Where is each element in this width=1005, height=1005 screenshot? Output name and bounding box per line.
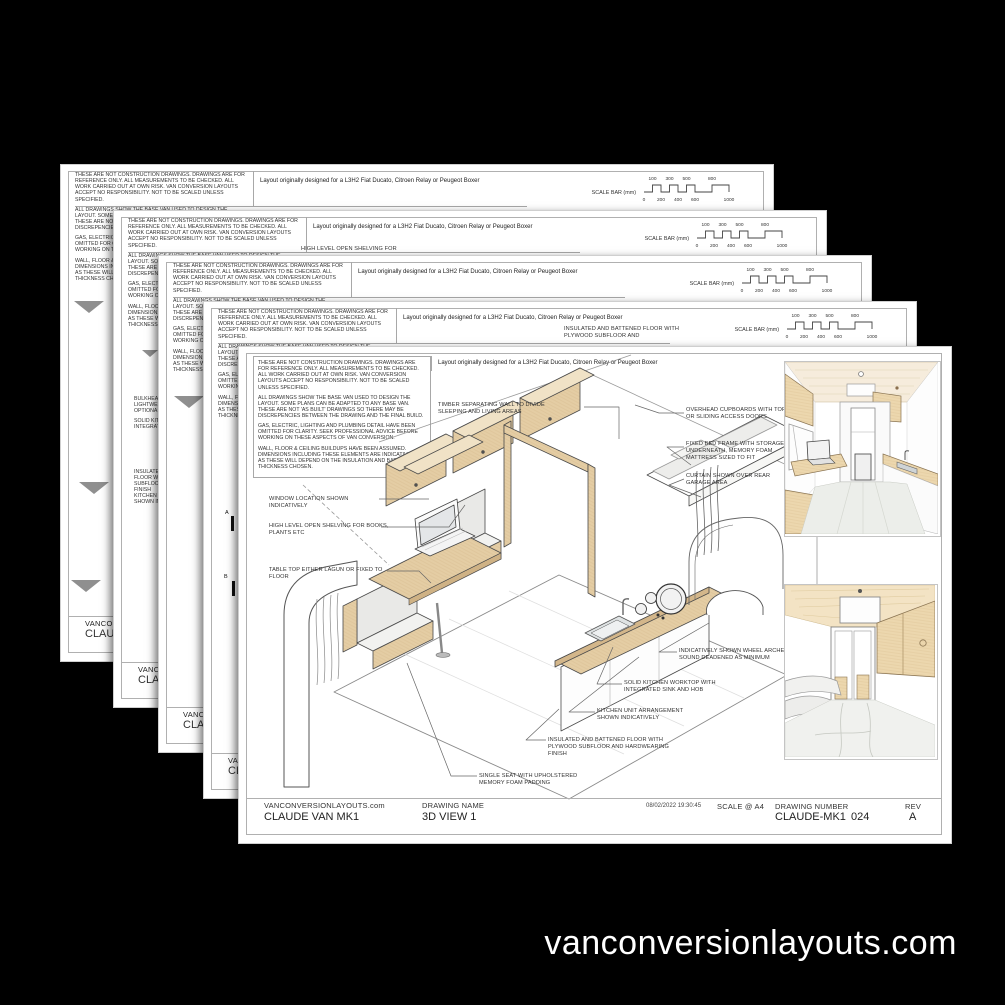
- scale-bar: SCALE BAR (mm) 100 300 500 800 0 200 400…: [654, 261, 839, 295]
- level-marker-icon: [174, 396, 204, 408]
- svg-text:800: 800: [708, 176, 716, 182]
- svg-text:300: 300: [665, 176, 673, 182]
- canvas: THESE ARE NOT CONSTRUCTION DRAWINGS. DRA…: [0, 0, 1005, 1005]
- drawing-number-label: DRAWING NUMBER: [775, 802, 848, 811]
- scale-bar: SCALE BAR (mm) 100 300 500 800 0 200 400…: [609, 216, 794, 250]
- disclaimer-paragraph: THESE ARE NOT CONSTRUCTION DRAWINGS. DRA…: [218, 309, 388, 340]
- annotation-insulated-floor: INSULATED AND BATTENED FLOOR WITH PLYWOO…: [548, 737, 670, 758]
- layout-note: Layout originally designed for a L3H2 Fi…: [260, 178, 479, 184]
- svg-text:SCALE BAR (mm): SCALE BAR (mm): [690, 281, 735, 287]
- scale-label: SCALE @ A4: [717, 802, 764, 811]
- svg-text:400: 400: [674, 197, 682, 203]
- render-view-1: [784, 361, 941, 537]
- ceiling-light: [859, 372, 864, 377]
- svg-text:300: 300: [718, 222, 726, 228]
- svg-text:300: 300: [763, 267, 771, 273]
- annotation-curtain: CURTAIN SHOWN OVER REAR GARAGE AREA: [686, 473, 782, 487]
- level-marker-icon: [79, 482, 109, 494]
- timestamp: 08/02/2022 19:30:45: [646, 803, 701, 809]
- svg-text:200: 200: [800, 334, 808, 340]
- svg-text:1000: 1000: [724, 197, 735, 203]
- svg-text:600: 600: [834, 334, 842, 340]
- svg-text:500: 500: [825, 313, 833, 319]
- svg-text:100: 100: [701, 222, 709, 228]
- svg-text:500: 500: [735, 222, 743, 228]
- level-marker-icon: [142, 350, 158, 357]
- header-divider: [75, 206, 527, 207]
- section-marker: B: [224, 574, 228, 580]
- level-marker-icon: [71, 580, 101, 592]
- annotation-kitchen-worktop: SOLID KITCHEN WORKTOP WITH INTEGRATED SI…: [624, 680, 742, 694]
- svg-text:800: 800: [851, 313, 859, 319]
- section-marker: A: [225, 510, 229, 516]
- title-block-site: VANCONVERSIONLAYOUTS.com: [264, 801, 385, 810]
- drawing-name-value: 3D VIEW 1: [422, 811, 476, 823]
- header-divider: [351, 262, 352, 297]
- svg-text:1000: 1000: [822, 288, 833, 294]
- title-block-project: CLAUDE VAN MK1: [264, 811, 359, 823]
- annotation-shelving-fragment: HIGH LEVEL OPEN SHELVING FOR: [301, 246, 421, 253]
- disclaimer-paragraph: THESE ARE NOT CONSTRUCTION DRAWINGS. DRA…: [173, 263, 343, 294]
- annotation-open-shelving: HIGH LEVEL OPEN SHELVING FOR BOOKS, PLAN…: [269, 523, 395, 537]
- svg-text:400: 400: [817, 334, 825, 340]
- annotation-kitchen-unit: KITCHEN UNIT ARRANGEMENT SHOWN INDICATIV…: [597, 708, 705, 722]
- header-divider: [173, 297, 625, 298]
- title-block-divider: [246, 798, 942, 799]
- svg-text:0: 0: [741, 288, 744, 294]
- watermark-text: vanconversionlayouts.com: [544, 924, 957, 963]
- svg-text:300: 300: [808, 313, 816, 319]
- overhead-cupboards: [386, 368, 594, 506]
- svg-text:1000: 1000: [867, 334, 878, 340]
- header-divider: [218, 343, 670, 344]
- ceiling-light: [858, 589, 862, 593]
- annotation-timber-wall: TIMBER SEPARATING WALL TO DIVIDE SLEEPIN…: [438, 402, 570, 416]
- svg-text:100: 100: [791, 313, 799, 319]
- scale-bar: SCALE BAR (mm) 100 300 500 800 0 200 400…: [556, 170, 741, 204]
- annotation-floor-fragment: INSULATED AND BATTENED FLOOR WITH PLYWOO…: [564, 326, 682, 340]
- level-marker-icon: [74, 301, 104, 313]
- svg-text:SCALE BAR (mm): SCALE BAR (mm): [592, 190, 637, 196]
- svg-text:400: 400: [772, 288, 780, 294]
- section-marker-tick: [231, 516, 234, 531]
- render-view-2: [784, 584, 938, 760]
- header-divider: [396, 308, 397, 343]
- svg-text:600: 600: [744, 243, 752, 249]
- svg-text:0: 0: [643, 197, 646, 203]
- svg-text:500: 500: [780, 267, 788, 273]
- annotation-fixed-bed: FIXED BED FRAME WITH STORAGE UNDERNEATH,…: [686, 441, 798, 462]
- svg-text:200: 200: [755, 288, 763, 294]
- rev-value: A: [909, 811, 916, 823]
- roof-vent: [847, 384, 875, 396]
- page-number: 024: [851, 811, 869, 823]
- svg-text:200: 200: [710, 243, 718, 249]
- layout-note: Layout originally designed for a L3H2 Fi…: [358, 269, 577, 275]
- svg-text:600: 600: [789, 288, 797, 294]
- svg-text:100: 100: [648, 176, 656, 182]
- svg-text:1000: 1000: [777, 243, 788, 249]
- drawing-name-label: DRAWING NAME: [422, 801, 484, 810]
- svg-text:0: 0: [786, 334, 789, 340]
- svg-text:400: 400: [727, 243, 735, 249]
- separating-wall: [504, 421, 595, 597]
- annotation-table-top: TABLE TOP EITHER LAGUN OR FIXED TO FLOOR: [269, 567, 401, 581]
- section-marker-tick: [232, 581, 235, 596]
- layout-note: Layout originally designed for a L3H2 Fi…: [313, 224, 532, 230]
- render2-skylight: [840, 597, 880, 623]
- scale-bar: SCALE BAR (mm) 100 300 500 800 0 200 400…: [699, 307, 884, 341]
- svg-text:SCALE BAR (mm): SCALE BAR (mm): [735, 327, 780, 333]
- door-arch: [284, 561, 357, 787]
- svg-text:SCALE BAR (mm): SCALE BAR (mm): [645, 236, 690, 242]
- svg-text:200: 200: [657, 197, 665, 203]
- disclaimer-paragraph: THESE ARE NOT CONSTRUCTION DRAWINGS. DRA…: [128, 218, 298, 249]
- svg-text:100: 100: [746, 267, 754, 273]
- svg-text:600: 600: [691, 197, 699, 203]
- disclaimer-paragraph: THESE ARE NOT CONSTRUCTION DRAWINGS. DRA…: [75, 172, 245, 203]
- annotation-window-location: WINDOW LOCATION SHOWN INDICATIVELY: [269, 496, 373, 510]
- svg-text:800: 800: [806, 267, 814, 273]
- drawing-number-value: CLAUDE-MK1: [775, 811, 846, 823]
- sheet-page-5-front: THESE ARE NOT CONSTRUCTION DRAWINGS. DRA…: [238, 346, 952, 844]
- header-divider: [253, 171, 254, 206]
- svg-text:0: 0: [696, 243, 699, 249]
- render1-laptop: [807, 440, 830, 460]
- rev-label: REV: [905, 802, 921, 811]
- svg-text:800: 800: [761, 222, 769, 228]
- annotation-single-seat: SINGLE SEAT WITH UPHOLSTERED MEMORY FOAM…: [479, 773, 597, 787]
- layout-note: Layout originally designed for a L3H2 Fi…: [403, 315, 622, 321]
- svg-text:500: 500: [682, 176, 690, 182]
